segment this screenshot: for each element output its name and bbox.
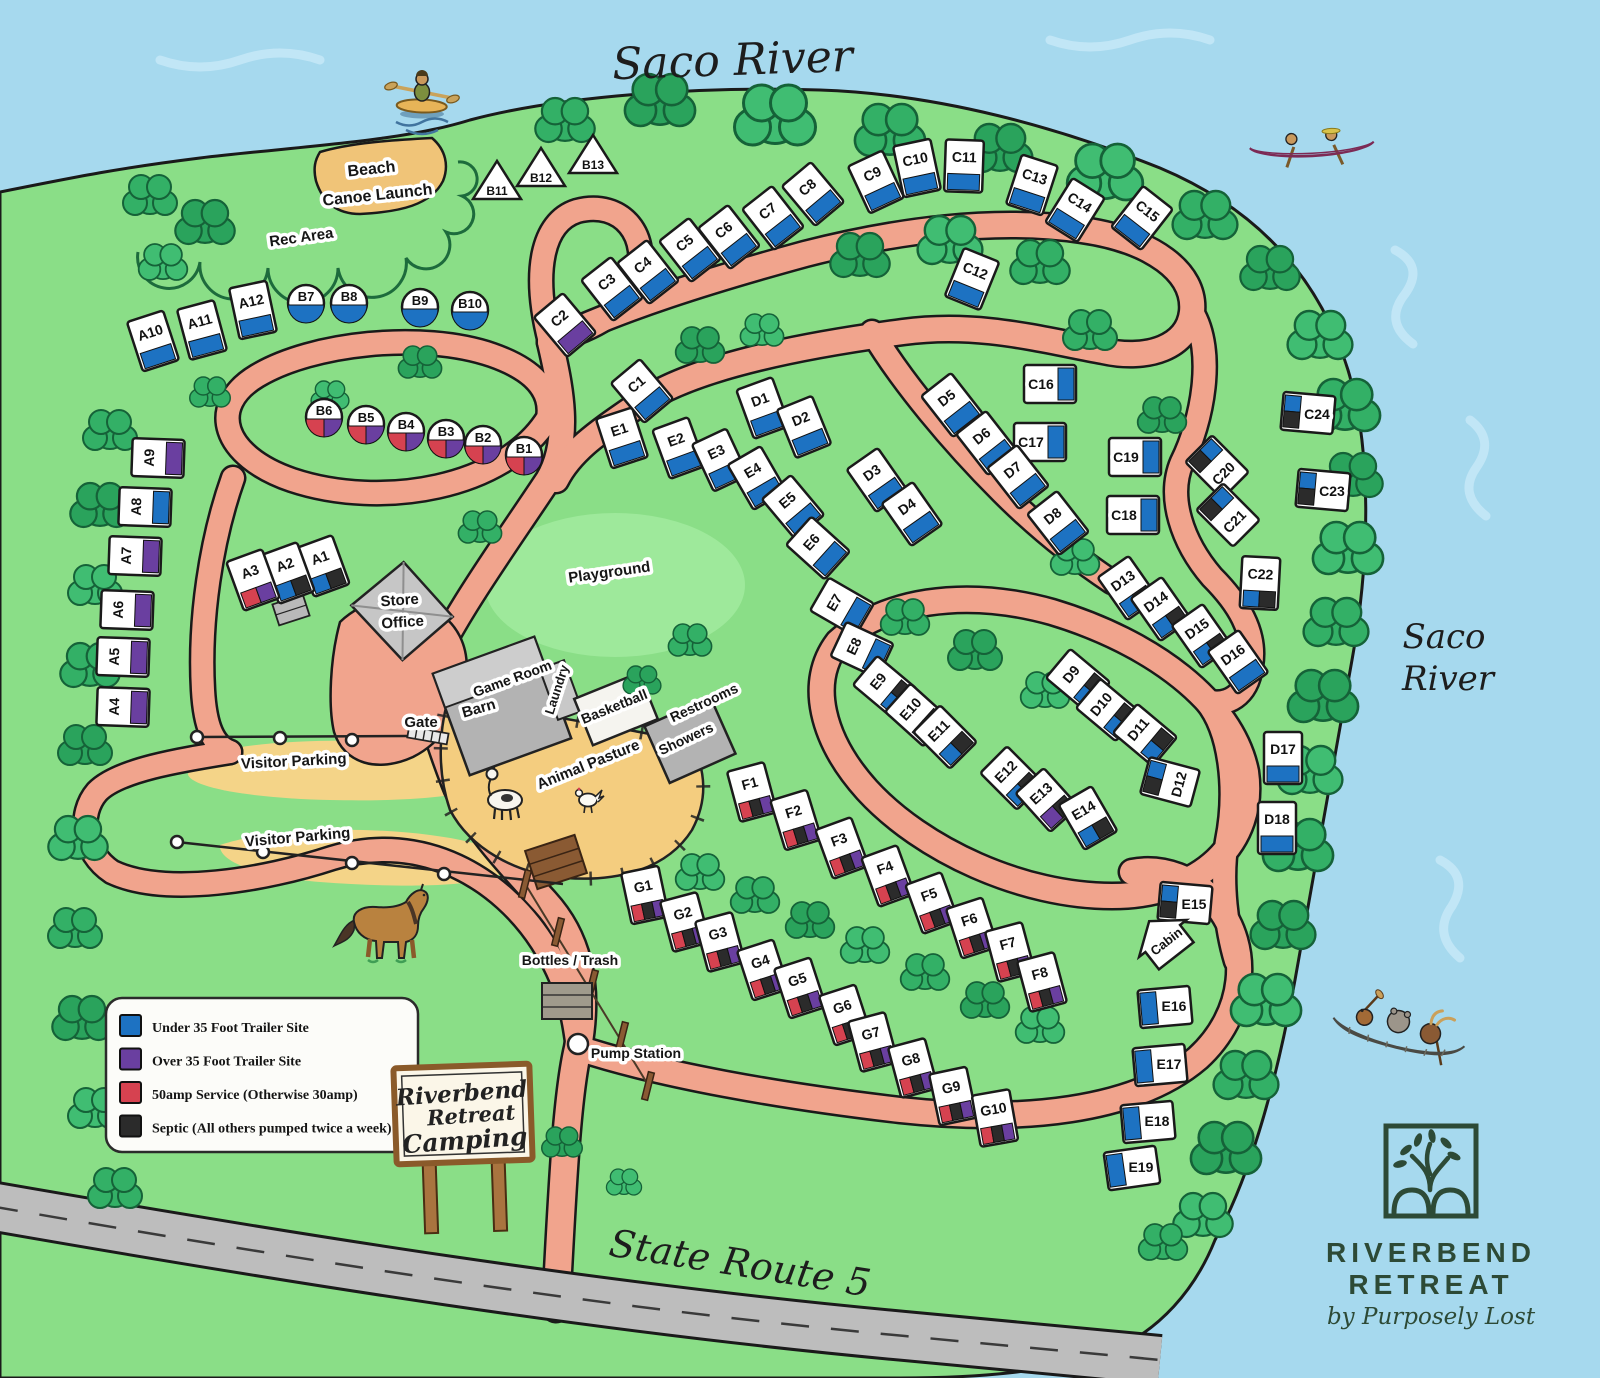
tree-cluster [841, 927, 890, 963]
site-label: B8 [341, 289, 358, 304]
site-stripe-black [1160, 901, 1177, 918]
site-label: C19 [1113, 449, 1139, 465]
map-label: Saco River [611, 31, 856, 90]
legend: Under 35 Foot Trailer SiteOver 35 Foot T… [106, 998, 418, 1152]
legend-label: Septic (All others pumped twice a week) [152, 1122, 392, 1137]
site-label: C16 [1028, 376, 1054, 392]
logo-line-2: RETREAT [1348, 1269, 1513, 1300]
site-label: A5 [106, 647, 123, 666]
site-stripe-blue [1141, 499, 1157, 531]
tree-cluster [1231, 974, 1301, 1026]
site-label: C22 [1247, 565, 1274, 582]
site-label: B6 [316, 403, 333, 418]
tree-cluster [1139, 1224, 1188, 1260]
tree-cluster [881, 599, 930, 635]
site-C24: C24 [1280, 392, 1335, 434]
pump-station-marker [568, 1034, 588, 1054]
legend-label: Under 35 Foot Trailer Site [152, 1021, 309, 1036]
site-C16: C16 [1024, 365, 1076, 403]
site-stripe-blue [1048, 426, 1064, 458]
site-label: B9 [412, 293, 429, 308]
site-A8: A8 [118, 487, 171, 527]
tree-cluster [901, 954, 950, 990]
logo-tagline: by Purposely Lost [1327, 1304, 1536, 1330]
tree-cluster [190, 377, 231, 407]
legend-label: 50amp Service (Otherwise 30amp) [152, 1088, 358, 1103]
site-label: E18 [1145, 1113, 1170, 1129]
site-stripe-blue [1135, 1050, 1154, 1083]
site-B4: B4 [388, 413, 424, 451]
site-label: E15 [1182, 896, 1207, 912]
site-B8: B8 [331, 285, 367, 323]
site-D17: D17 [1264, 732, 1302, 784]
tree-cluster [52, 996, 111, 1040]
site-label: B2 [475, 430, 492, 445]
site-E15: E15 [1157, 882, 1212, 924]
tree-cluster [1063, 310, 1117, 350]
tree-cluster [676, 854, 725, 890]
site-B3: B3 [428, 420, 464, 458]
site-label: B12 [530, 171, 552, 185]
site-B5: B5 [348, 406, 384, 444]
map-label: Pump Station [591, 1045, 681, 1061]
site-label: A6 [110, 600, 127, 619]
tree-cluster [961, 982, 1010, 1018]
tree-cluster [58, 725, 112, 765]
campground-map: A1A2A3A4A5A6A7A8A9A10A11A12B1B2B3B4B5B6B… [0, 0, 1600, 1378]
site-stripe-blue [1143, 441, 1159, 473]
legend-swatch-blue [120, 1015, 141, 1036]
tree-cluster [542, 1127, 583, 1157]
tree-cluster [668, 624, 711, 656]
site-stripe-blue [1261, 836, 1293, 852]
tree-cluster [48, 816, 107, 860]
map-label: River [1401, 659, 1496, 699]
bottles-trash-bin [542, 983, 592, 1019]
tree-cluster [735, 85, 816, 145]
site-stripe-black [1259, 591, 1276, 608]
site-stripe-blue [152, 491, 169, 524]
site-B1: B1 [506, 437, 542, 475]
site-G10: G10 [972, 1089, 1018, 1147]
site-stripe-purple [130, 641, 147, 674]
site-C11: C11 [944, 139, 984, 192]
site-stripe-blue [1243, 590, 1260, 607]
site-A5: A5 [96, 637, 149, 677]
site-label: D17 [1270, 741, 1296, 757]
map-label: Saco [1402, 617, 1485, 657]
map-label: Office [381, 613, 425, 633]
site-label: A8 [128, 497, 145, 516]
logo-line-1: RIVERBEND [1326, 1237, 1536, 1268]
campground-map-page: A1A2A3A4A5A6A7A8A9A10A11A12B1B2B3B4B5B6B… [0, 0, 1600, 1378]
map-label: Bottles / Trash [522, 952, 618, 968]
site-B10: B10 [452, 292, 488, 330]
site-A6: A6 [100, 590, 153, 630]
site-stripe-purple [134, 594, 151, 627]
site-label: B5 [358, 410, 375, 425]
site-stripe-black [1283, 411, 1300, 428]
legend-swatch-red [120, 1082, 141, 1103]
legend-swatch-purple [120, 1049, 141, 1070]
site-stripe-blue [947, 173, 980, 190]
site-label: A4 [106, 697, 123, 716]
tree-cluster [1288, 311, 1353, 359]
tree-cluster [786, 902, 835, 938]
tree-cluster [830, 233, 889, 277]
tree-cluster [1304, 598, 1369, 646]
site-label: B4 [398, 417, 415, 432]
site-label: B1 [516, 441, 533, 456]
tree-cluster [1016, 1007, 1065, 1043]
site-stripe-blue [1267, 766, 1299, 782]
tree-cluster [1251, 901, 1316, 949]
site-stripe-blue [1140, 992, 1159, 1025]
tree-cluster [1010, 240, 1069, 284]
site-stripe-blue [1161, 885, 1178, 902]
tree-cluster [1138, 397, 1187, 433]
site-stripe-purple [1002, 1123, 1015, 1141]
site-stripe-purple [165, 442, 182, 475]
tree-cluster [83, 410, 137, 450]
tree-cluster [123, 175, 177, 215]
site-label: E17 [1157, 1056, 1182, 1072]
tree-cluster [731, 877, 780, 913]
tree-cluster [48, 908, 102, 948]
tree-cluster [1313, 522, 1383, 574]
site-label: A7 [118, 546, 135, 565]
site-A9: A9 [131, 438, 184, 478]
site-label: E16 [1162, 998, 1187, 1014]
site-C23: C23 [1295, 469, 1350, 511]
site-B9: B9 [402, 289, 438, 327]
site-E18: E18 [1120, 1101, 1175, 1143]
site-stripe-blue [1058, 368, 1074, 400]
site-stripe-purple [130, 691, 147, 724]
site-label: C17 [1018, 434, 1044, 450]
site-label: B7 [298, 289, 315, 304]
tree-cluster [676, 327, 725, 363]
map-label: Store [380, 591, 419, 611]
site-stripe-blue [1284, 395, 1301, 412]
site-C22: C22 [1240, 556, 1281, 610]
site-B7: B7 [288, 285, 324, 323]
tree-cluster [948, 630, 1002, 670]
site-A7: A7 [108, 536, 161, 576]
site-label: B13 [582, 158, 604, 172]
tree-cluster [1173, 191, 1238, 239]
site-stripe-blue [1299, 472, 1316, 489]
site-C19: C19 [1109, 438, 1161, 476]
site-B2: B2 [465, 426, 501, 464]
tree-cluster [606, 1169, 641, 1195]
tree-cluster [740, 314, 783, 346]
site-label: C18 [1111, 507, 1137, 523]
site-label: C23 [1319, 483, 1345, 499]
site-label: E19 [1128, 1159, 1153, 1175]
site-C18: C18 [1107, 496, 1159, 534]
tree-cluster [535, 98, 594, 142]
legend-swatch-black [120, 1116, 141, 1137]
site-label: B10 [458, 296, 482, 311]
site-B6: B6 [306, 399, 342, 437]
tree-cluster [1173, 1193, 1232, 1237]
tree-cluster [458, 511, 501, 543]
tree-cluster [1240, 246, 1299, 290]
site-D18: D18 [1258, 802, 1296, 854]
legend-label: Over 35 Foot Trailer Site [152, 1055, 301, 1070]
site-label: B3 [438, 424, 455, 439]
site-E16: E16 [1137, 986, 1192, 1028]
tree-cluster [1191, 1122, 1261, 1174]
tree-cluster [139, 244, 188, 280]
site-stripe-black [1298, 488, 1315, 505]
tree-cluster [88, 1168, 142, 1208]
site-label: D18 [1264, 811, 1290, 827]
site-label: C24 [1304, 406, 1330, 422]
site-E19: E19 [1104, 1146, 1161, 1191]
map-label: Gate [404, 714, 437, 731]
site-E17: E17 [1132, 1044, 1187, 1086]
tree-cluster [1214, 1051, 1279, 1099]
site-A4: A4 [96, 687, 149, 727]
site-stripe-black [1143, 776, 1163, 796]
site-label: C11 [952, 149, 978, 166]
site-label: B11 [486, 184, 508, 198]
site-stripe-blue [1123, 1107, 1142, 1140]
tree-cluster [398, 346, 441, 378]
site-stripe-purple [142, 540, 159, 573]
site-label: A9 [141, 448, 158, 467]
tree-cluster [175, 200, 234, 244]
tree-cluster [1288, 670, 1358, 722]
